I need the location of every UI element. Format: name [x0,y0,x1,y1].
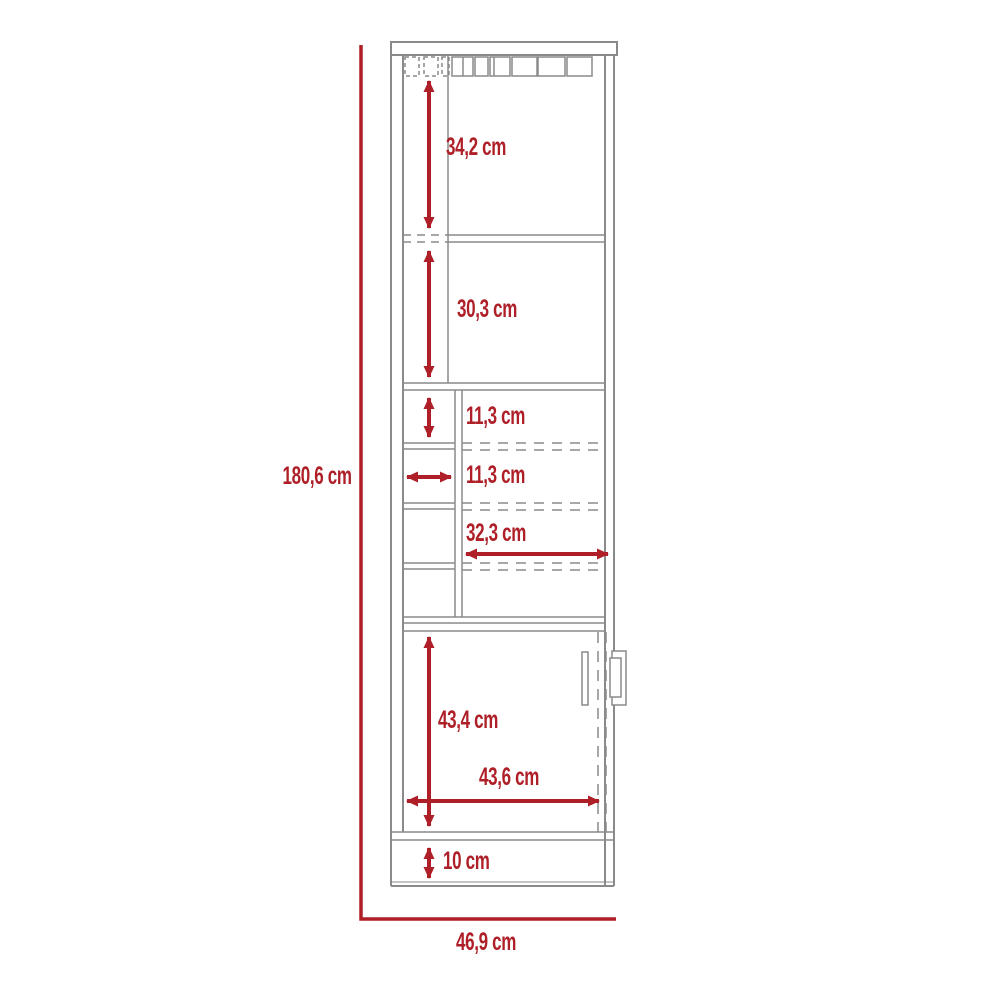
top-board [391,42,617,55]
diagram-canvas: 180,6 cm 46,9 cm 34,2 cm 30,3 cm 11,3 cm… [0,0,1000,1000]
dim-label-total-height: 180,6 cm [250,464,352,489]
dim-label-total-width: 46,9 cm [456,930,544,955]
handle-side-notch [610,658,621,697]
stemware-rack [405,55,592,383]
handle-front-bar [582,652,588,705]
dim-label-shelf-width: 32,3 cm [466,521,554,546]
dim-label-cubby-height: 11,3 cm [466,404,553,429]
dim-label-base-height: 10 cm [443,849,511,874]
dim-label-middle-section: 30,3 cm [457,297,545,322]
dim-label-top-section: 34,2 cm [446,135,534,160]
dim-label-door-height: 43,4 cm [438,708,526,733]
dim-label-door-width: 43,6 cm [479,765,567,790]
dim-label-cubby-width: 11,3 cm [466,463,553,488]
plinth-base [391,832,614,840]
